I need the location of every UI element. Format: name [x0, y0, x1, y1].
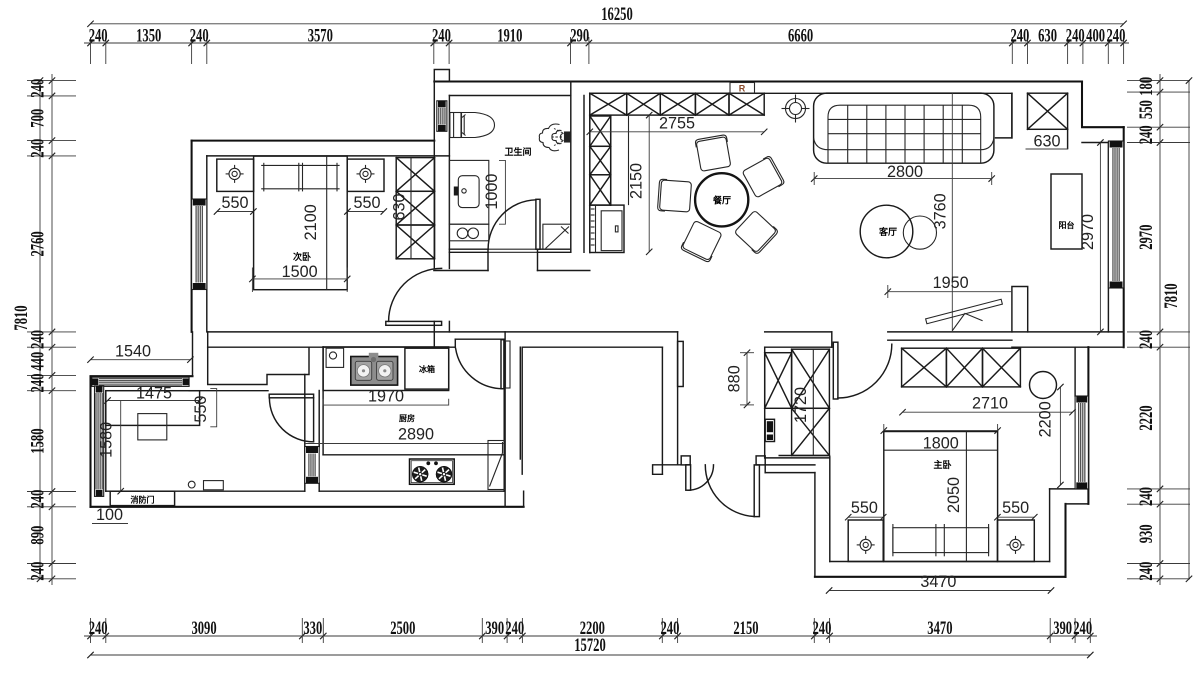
svg-text:厨房: 厨房: [399, 413, 415, 423]
svg-text:7810: 7810: [1162, 283, 1182, 308]
svg-text:240: 240: [89, 26, 108, 46]
svg-text:1540: 1540: [115, 343, 151, 361]
svg-text:3470: 3470: [920, 573, 956, 591]
svg-text:2970: 2970: [1137, 225, 1157, 250]
svg-text:240: 240: [29, 330, 49, 349]
svg-text:3470: 3470: [927, 619, 952, 639]
svg-text:550: 550: [353, 194, 380, 212]
svg-text:3570: 3570: [308, 26, 333, 46]
svg-text:次卧: 次卧: [293, 251, 311, 262]
svg-text:7810: 7810: [12, 305, 32, 330]
svg-text:240: 240: [1066, 26, 1085, 46]
svg-text:550: 550: [192, 396, 210, 423]
svg-text:630: 630: [1038, 26, 1057, 46]
svg-text:1910: 1910: [497, 26, 522, 46]
svg-text:阳台: 阳台: [1059, 220, 1075, 230]
svg-text:330: 330: [303, 619, 322, 639]
svg-text:240: 240: [29, 79, 49, 98]
svg-text:1970: 1970: [368, 388, 404, 406]
svg-text:240: 240: [1137, 330, 1157, 349]
svg-text:2890: 2890: [398, 426, 434, 444]
svg-text:240: 240: [661, 619, 680, 639]
svg-text:240: 240: [190, 26, 209, 46]
svg-text:550: 550: [1002, 499, 1029, 517]
svg-text:240: 240: [1137, 562, 1157, 581]
svg-text:2500: 2500: [390, 619, 415, 639]
svg-text:6660: 6660: [788, 26, 813, 46]
svg-text:240: 240: [29, 490, 49, 509]
svg-text:390: 390: [485, 619, 504, 639]
svg-text:240: 240: [1137, 487, 1157, 506]
svg-text:2970: 2970: [1079, 214, 1097, 250]
svg-text:240: 240: [29, 139, 49, 158]
svg-text:2755: 2755: [659, 115, 695, 133]
svg-text:1000: 1000: [483, 174, 501, 210]
svg-text:2050: 2050: [945, 477, 963, 513]
svg-text:1475: 1475: [136, 385, 172, 403]
svg-text:3090: 3090: [191, 619, 216, 639]
svg-text:240: 240: [1010, 26, 1029, 46]
svg-text:16250: 16250: [601, 5, 633, 25]
svg-text:630: 630: [1033, 133, 1060, 151]
svg-text:930: 930: [1137, 524, 1157, 543]
svg-text:240: 240: [1107, 26, 1126, 46]
svg-text:2200: 2200: [1036, 401, 1054, 437]
svg-text:400: 400: [1086, 26, 1105, 46]
svg-text:1500: 1500: [282, 263, 318, 281]
svg-text:2100: 2100: [302, 204, 320, 240]
svg-text:2150: 2150: [733, 619, 758, 639]
svg-text:240: 240: [432, 26, 451, 46]
svg-text:2760: 2760: [29, 231, 49, 256]
svg-text:卫生间: 卫生间: [504, 146, 531, 157]
svg-text:R: R: [739, 84, 746, 94]
svg-text:100: 100: [96, 506, 123, 524]
svg-text:1580: 1580: [98, 422, 116, 458]
svg-text:550: 550: [1137, 100, 1157, 119]
svg-text:2710: 2710: [972, 395, 1008, 413]
svg-text:1580: 1580: [29, 429, 49, 454]
svg-text:240: 240: [505, 619, 524, 639]
svg-text:15720: 15720: [574, 636, 606, 656]
svg-text:240: 240: [89, 619, 108, 639]
svg-text:390: 390: [1053, 619, 1072, 639]
svg-text:1720: 1720: [792, 387, 810, 423]
svg-text:240: 240: [813, 619, 832, 639]
svg-text:消防门: 消防门: [131, 494, 155, 504]
svg-text:240: 240: [29, 562, 49, 581]
svg-text:180: 180: [1137, 77, 1157, 96]
svg-text:主卧: 主卧: [933, 459, 951, 470]
svg-text:240: 240: [1073, 619, 1092, 639]
svg-text:冰箱: 冰箱: [419, 364, 435, 374]
svg-text:2220: 2220: [1137, 405, 1157, 430]
svg-text:550: 550: [851, 499, 878, 517]
svg-text:240: 240: [1137, 125, 1157, 144]
svg-text:餐厅: 餐厅: [712, 195, 731, 206]
svg-text:890: 890: [29, 526, 49, 545]
svg-text:1350: 1350: [136, 26, 161, 46]
svg-text:240: 240: [29, 374, 49, 393]
svg-text:700: 700: [29, 109, 49, 128]
svg-text:客厅: 客厅: [878, 226, 897, 237]
svg-text:440: 440: [29, 352, 49, 371]
svg-text:550: 550: [221, 194, 248, 212]
svg-text:2150: 2150: [628, 163, 646, 199]
svg-text:290: 290: [570, 26, 589, 46]
svg-text:1950: 1950: [933, 274, 969, 292]
svg-text:630: 630: [391, 193, 409, 220]
svg-text:880: 880: [726, 365, 744, 392]
